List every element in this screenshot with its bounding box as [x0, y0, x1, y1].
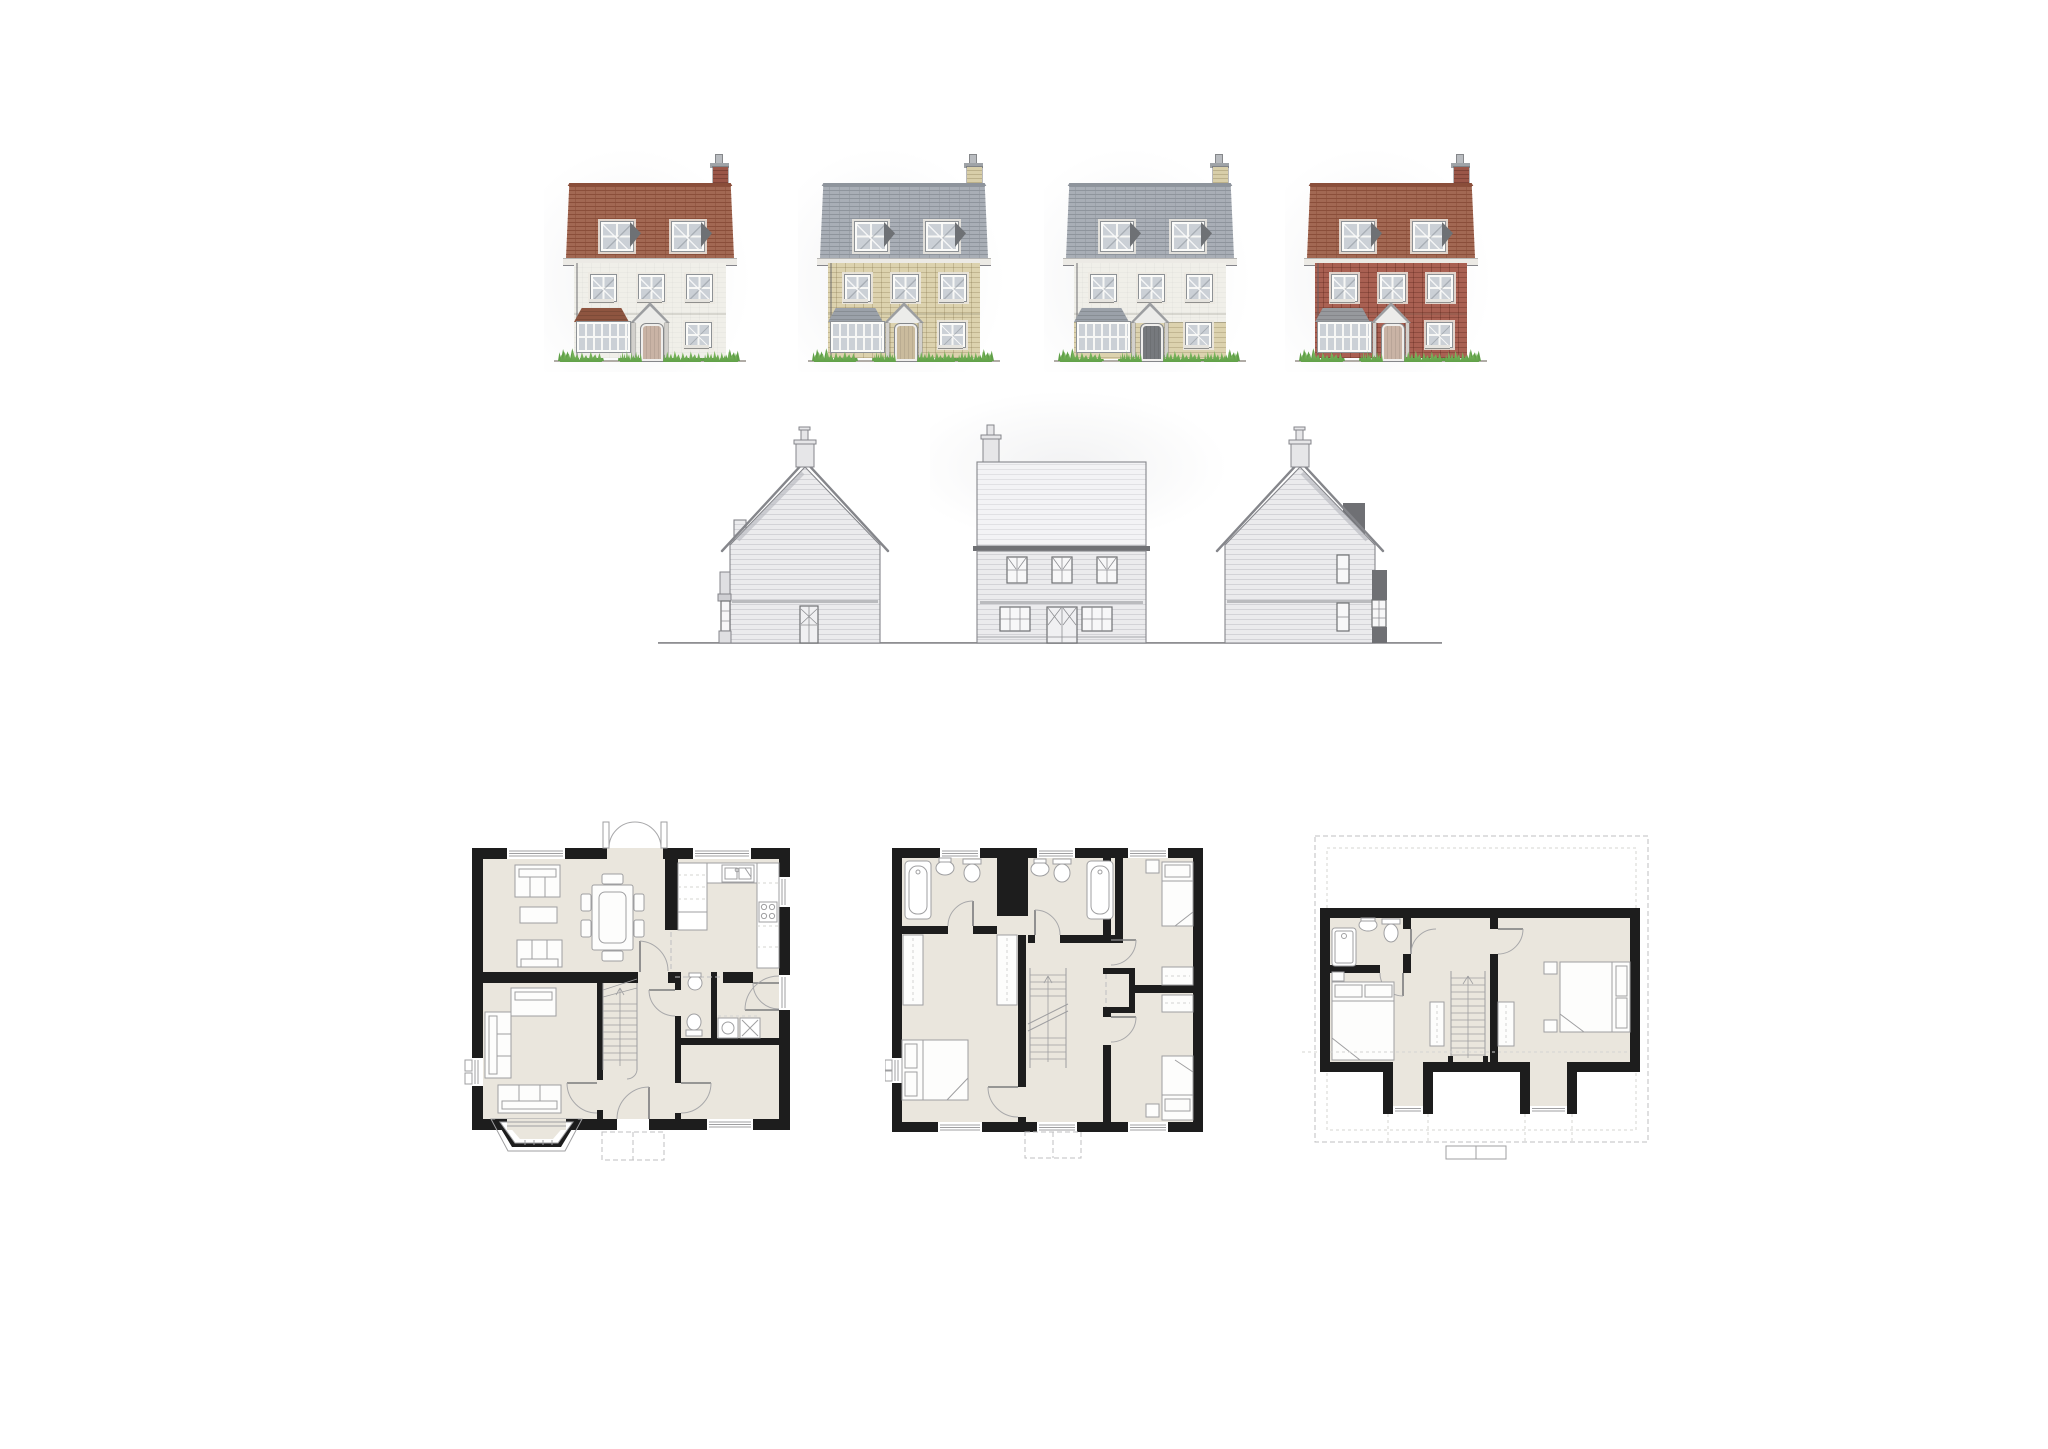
chimney-cap — [981, 435, 1001, 439]
porch-post — [632, 323, 635, 357]
chimney-pot-cap — [799, 427, 810, 430]
bay-window — [491, 1119, 582, 1151]
bay-window-side — [718, 572, 731, 643]
front-door — [895, 324, 917, 361]
bay-window-roof — [574, 308, 629, 322]
window-sill — [1185, 299, 1210, 302]
chimney-pot — [987, 425, 994, 435]
front-porch-outline — [1025, 1132, 1081, 1158]
first-floor-plan — [885, 828, 1215, 1176]
chimney-pot-cap — [1294, 427, 1305, 430]
window-sill — [685, 299, 710, 302]
dormer-window — [1342, 222, 1374, 251]
dormer-window — [1413, 222, 1445, 251]
window-sill — [938, 345, 963, 348]
porch-post — [1165, 323, 1168, 357]
roof-ridge — [1066, 183, 1234, 186]
hob — [759, 902, 777, 922]
bay-window-roof — [1315, 308, 1370, 322]
window-sill — [1378, 299, 1403, 302]
window-opening — [940, 848, 980, 858]
first-floor-window — [845, 275, 870, 301]
first-floor-window — [1139, 275, 1164, 301]
roof-ridge — [1307, 183, 1475, 186]
rear-elevation — [973, 425, 1150, 643]
side-elevation-right — [1217, 427, 1387, 643]
dormer-window — [1172, 222, 1204, 251]
eaves-line — [973, 546, 1150, 551]
front-door — [641, 324, 663, 361]
dormer-window — [926, 222, 958, 251]
front-elevation-house-3-render-stone-plinth-slate — [1066, 150, 1234, 365]
string-course — [980, 601, 1143, 604]
chimney-pot — [1296, 429, 1303, 440]
window-sill — [589, 299, 614, 302]
bay-window — [1318, 322, 1371, 352]
porch-post — [1406, 323, 1409, 357]
rear-double-door — [1047, 607, 1077, 643]
chimney-stack — [1291, 442, 1309, 467]
dormer-window — [672, 222, 704, 251]
dormer-window — [601, 222, 633, 251]
window-sill — [1184, 345, 1209, 348]
window-sill — [939, 299, 964, 302]
window-sill — [684, 345, 709, 348]
ground-floor-window — [686, 323, 711, 347]
window-opening — [779, 877, 790, 907]
window-opening — [693, 848, 751, 859]
porch-post — [919, 323, 922, 357]
side-door — [800, 606, 818, 643]
window-sill — [1425, 345, 1450, 348]
chimney-stack — [983, 437, 999, 462]
window-opening — [465, 1058, 483, 1086]
roof-ridge — [820, 183, 988, 186]
window-opening — [1128, 848, 1168, 858]
bay-window — [577, 322, 630, 352]
first-floor-window — [893, 275, 918, 301]
porch-post — [1373, 323, 1376, 357]
first-floor-window — [687, 275, 712, 301]
first-floor-window — [1428, 275, 1453, 301]
first-floor-window — [1091, 275, 1116, 301]
gable-wall — [1225, 467, 1375, 643]
porch-post — [886, 323, 889, 357]
second-floor-plan — [1298, 824, 1670, 1176]
first-floor-window — [1380, 275, 1405, 301]
window-sill — [891, 299, 916, 302]
porch-post — [665, 323, 668, 357]
chimney-base-marks — [1446, 1146, 1506, 1159]
window-opening — [1128, 1122, 1168, 1132]
chimney-stack — [796, 442, 814, 467]
bay-window — [831, 322, 884, 352]
first-floor-window — [1332, 275, 1357, 301]
first-floor-windows — [1007, 557, 1117, 583]
window-opening — [938, 1122, 982, 1132]
front-elevation-house-1-white-render-red-tile — [566, 150, 734, 365]
main-roof — [820, 183, 988, 258]
ground-floor-window — [1186, 323, 1211, 347]
window-sill — [637, 299, 662, 302]
front-door — [1141, 324, 1163, 361]
window-sill — [1089, 299, 1114, 302]
front-door — [1382, 324, 1404, 361]
ground-floor-window — [940, 323, 965, 347]
first-floor-window — [591, 275, 616, 301]
string-course — [732, 600, 878, 603]
main-roof — [566, 183, 734, 258]
chimney-pot — [801, 429, 808, 440]
window-opening — [1037, 848, 1075, 858]
porch-post — [1132, 323, 1135, 357]
bay-window — [1077, 322, 1130, 352]
drawing-sheet — [0, 0, 2048, 1449]
roof-ridge — [566, 183, 734, 186]
bedroom-4-furniture — [1332, 972, 1394, 1060]
window-opening — [507, 848, 565, 859]
rear-porch — [603, 822, 667, 859]
front-elevation-house-4-red-brick-red-tile — [1307, 150, 1475, 365]
first-floor-window — [639, 275, 664, 301]
window-sill — [1330, 299, 1355, 302]
chimney-cap — [1289, 440, 1311, 444]
dormer-window — [855, 222, 887, 251]
ground-floor-plan — [453, 816, 805, 1178]
bay-window-roof — [1074, 308, 1129, 322]
window-opening — [885, 1058, 902, 1083]
string-course — [1227, 600, 1375, 603]
window-sill — [1137, 299, 1162, 302]
front-elevation-house-2-buff-stone-slate — [820, 150, 988, 365]
first-floor-window — [1187, 275, 1212, 301]
bay-window-side-shaded — [1372, 570, 1387, 643]
rear-roof — [977, 462, 1146, 546]
first-floor-window — [941, 275, 966, 301]
garden-door-opening — [779, 975, 790, 1010]
window-sill — [843, 299, 868, 302]
window-opening — [707, 1119, 753, 1130]
window-sill — [1426, 299, 1451, 302]
ground-floor-window — [1427, 323, 1452, 347]
main-roof — [1066, 183, 1234, 258]
main-roof — [1307, 183, 1475, 258]
window-opening — [1037, 1122, 1077, 1132]
bay-window-roof — [828, 308, 883, 322]
street-elevations — [650, 420, 1450, 655]
side-elevation-left — [718, 427, 888, 643]
dormer-window — [1101, 222, 1133, 251]
chimney-cap — [794, 440, 816, 444]
dormer-windows — [1388, 1106, 1572, 1142]
